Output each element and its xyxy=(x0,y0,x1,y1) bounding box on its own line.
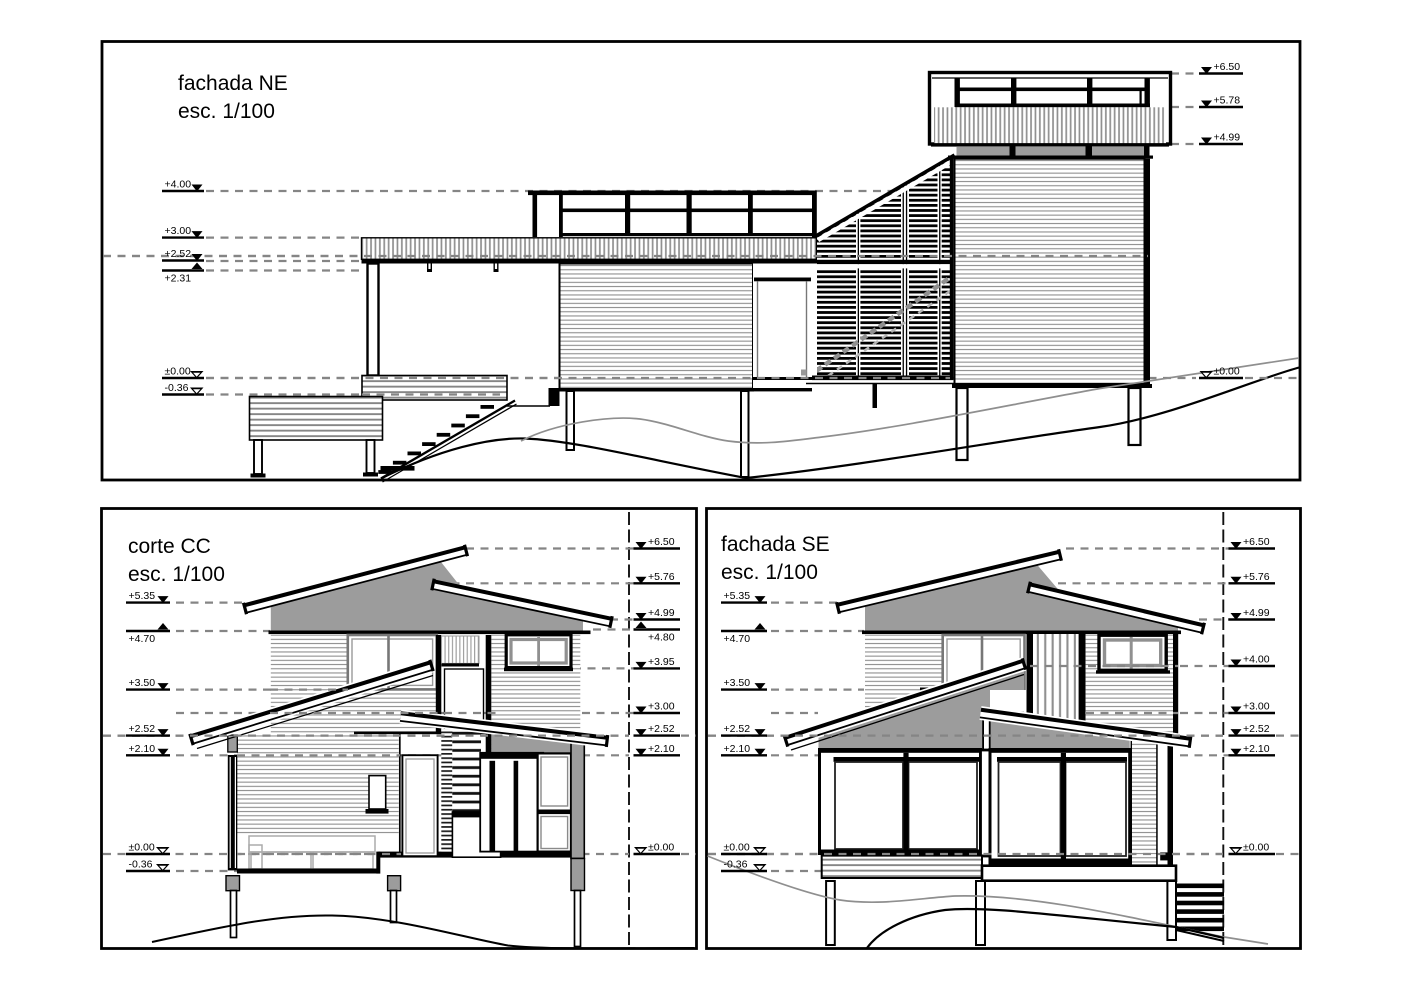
svg-text:±0.00: ±0.00 xyxy=(1214,366,1240,378)
svg-text:±0.00: ±0.00 xyxy=(1243,842,1269,854)
svg-text:-0.36: -0.36 xyxy=(129,859,153,871)
svg-text:+6.50: +6.50 xyxy=(1243,536,1270,548)
svg-text:+4.80: +4.80 xyxy=(648,632,675,644)
svg-text:+3.95: +3.95 xyxy=(648,656,675,668)
svg-text:+5.76: +5.76 xyxy=(648,571,675,583)
svg-text:+4.99: +4.99 xyxy=(1214,132,1241,144)
svg-text:+5.76: +5.76 xyxy=(1243,571,1270,583)
svg-text:corte CC: corte CC xyxy=(128,535,211,558)
svg-text:+5.35: +5.35 xyxy=(724,590,751,602)
svg-text:±0.00: ±0.00 xyxy=(165,366,191,378)
svg-text:±0.00: ±0.00 xyxy=(724,842,750,854)
svg-text:+2.52: +2.52 xyxy=(165,248,192,260)
svg-text:±0.00: ±0.00 xyxy=(648,842,674,854)
svg-text:+3.00: +3.00 xyxy=(648,701,675,713)
svg-text:+4.70: +4.70 xyxy=(724,633,751,645)
svg-text:+6.50: +6.50 xyxy=(1214,61,1241,73)
svg-text:esc. 1/100: esc. 1/100 xyxy=(721,561,818,584)
svg-text:+4.99: +4.99 xyxy=(648,607,675,619)
svg-text:+2.10: +2.10 xyxy=(724,743,751,755)
svg-text:+5.35: +5.35 xyxy=(129,590,156,602)
svg-text:+2.10: +2.10 xyxy=(129,743,156,755)
svg-text:+4.00: +4.00 xyxy=(1243,654,1270,666)
svg-text:+5.78: +5.78 xyxy=(1214,95,1241,107)
svg-text:+2.52: +2.52 xyxy=(1243,723,1270,735)
svg-text:+2.52: +2.52 xyxy=(648,723,675,735)
svg-text:+3.00: +3.00 xyxy=(1243,701,1270,713)
svg-text:±0.00: ±0.00 xyxy=(129,842,155,854)
svg-text:+3.50: +3.50 xyxy=(724,677,751,689)
svg-text:+4.00: +4.00 xyxy=(165,179,192,191)
svg-text:+2.52: +2.52 xyxy=(724,723,751,735)
svg-text:-0.36: -0.36 xyxy=(724,859,748,871)
svg-text:esc. 1/100: esc. 1/100 xyxy=(178,100,275,123)
svg-text:fachada SE: fachada SE xyxy=(721,533,830,556)
svg-text:+3.00: +3.00 xyxy=(165,225,192,237)
svg-text:esc. 1/100: esc. 1/100 xyxy=(128,563,225,586)
svg-text:+6.50: +6.50 xyxy=(648,536,675,548)
svg-text:+4.70: +4.70 xyxy=(129,633,156,645)
svg-text:fachada NE: fachada NE xyxy=(178,72,288,95)
svg-text:+3.50: +3.50 xyxy=(129,677,156,689)
svg-text:+4.99: +4.99 xyxy=(1243,607,1270,619)
svg-text:+2.10: +2.10 xyxy=(648,743,675,755)
svg-text:+2.52: +2.52 xyxy=(129,723,156,735)
svg-text:-0.36: -0.36 xyxy=(165,382,189,394)
svg-text:+2.10: +2.10 xyxy=(1243,743,1270,755)
svg-text:+2.31: +2.31 xyxy=(165,273,192,285)
